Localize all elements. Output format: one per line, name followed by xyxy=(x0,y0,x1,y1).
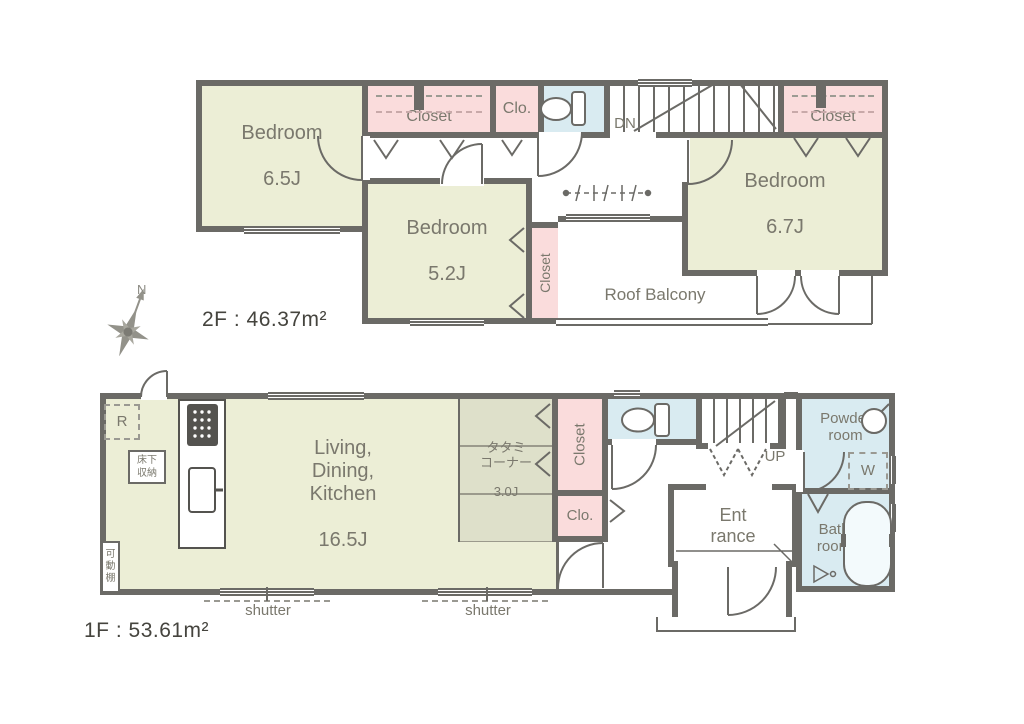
folding-door-dashed xyxy=(710,449,766,475)
door-swing xyxy=(612,445,656,489)
stove-icon xyxy=(187,404,218,446)
toilet-icon xyxy=(622,404,669,436)
balcony-rail-line xyxy=(768,276,872,324)
bath-faucet-icon xyxy=(814,566,836,582)
handrail xyxy=(564,185,651,201)
door-swing xyxy=(442,144,482,184)
window-tick xyxy=(267,587,487,601)
kitchen-sink-icon xyxy=(189,468,223,512)
door-swing xyxy=(688,140,732,184)
balcony-double-door xyxy=(757,276,839,314)
door-swing xyxy=(558,543,603,588)
sink-icon xyxy=(862,404,889,433)
stairs-break-line xyxy=(634,84,776,131)
stairs-break-line xyxy=(716,401,775,446)
door-swing xyxy=(804,452,844,492)
toilet-icon xyxy=(541,92,585,125)
door-swing xyxy=(538,132,582,176)
door-swing xyxy=(141,371,167,397)
door-swing xyxy=(728,567,776,615)
floor-plan: Bedroom 6.5J Closet Clo. Closet Bedroom … xyxy=(0,0,1024,724)
door-swing xyxy=(318,136,362,180)
entrance-step-line xyxy=(676,544,792,562)
plan-details xyxy=(0,0,1024,724)
bathtub-icon xyxy=(841,502,894,586)
